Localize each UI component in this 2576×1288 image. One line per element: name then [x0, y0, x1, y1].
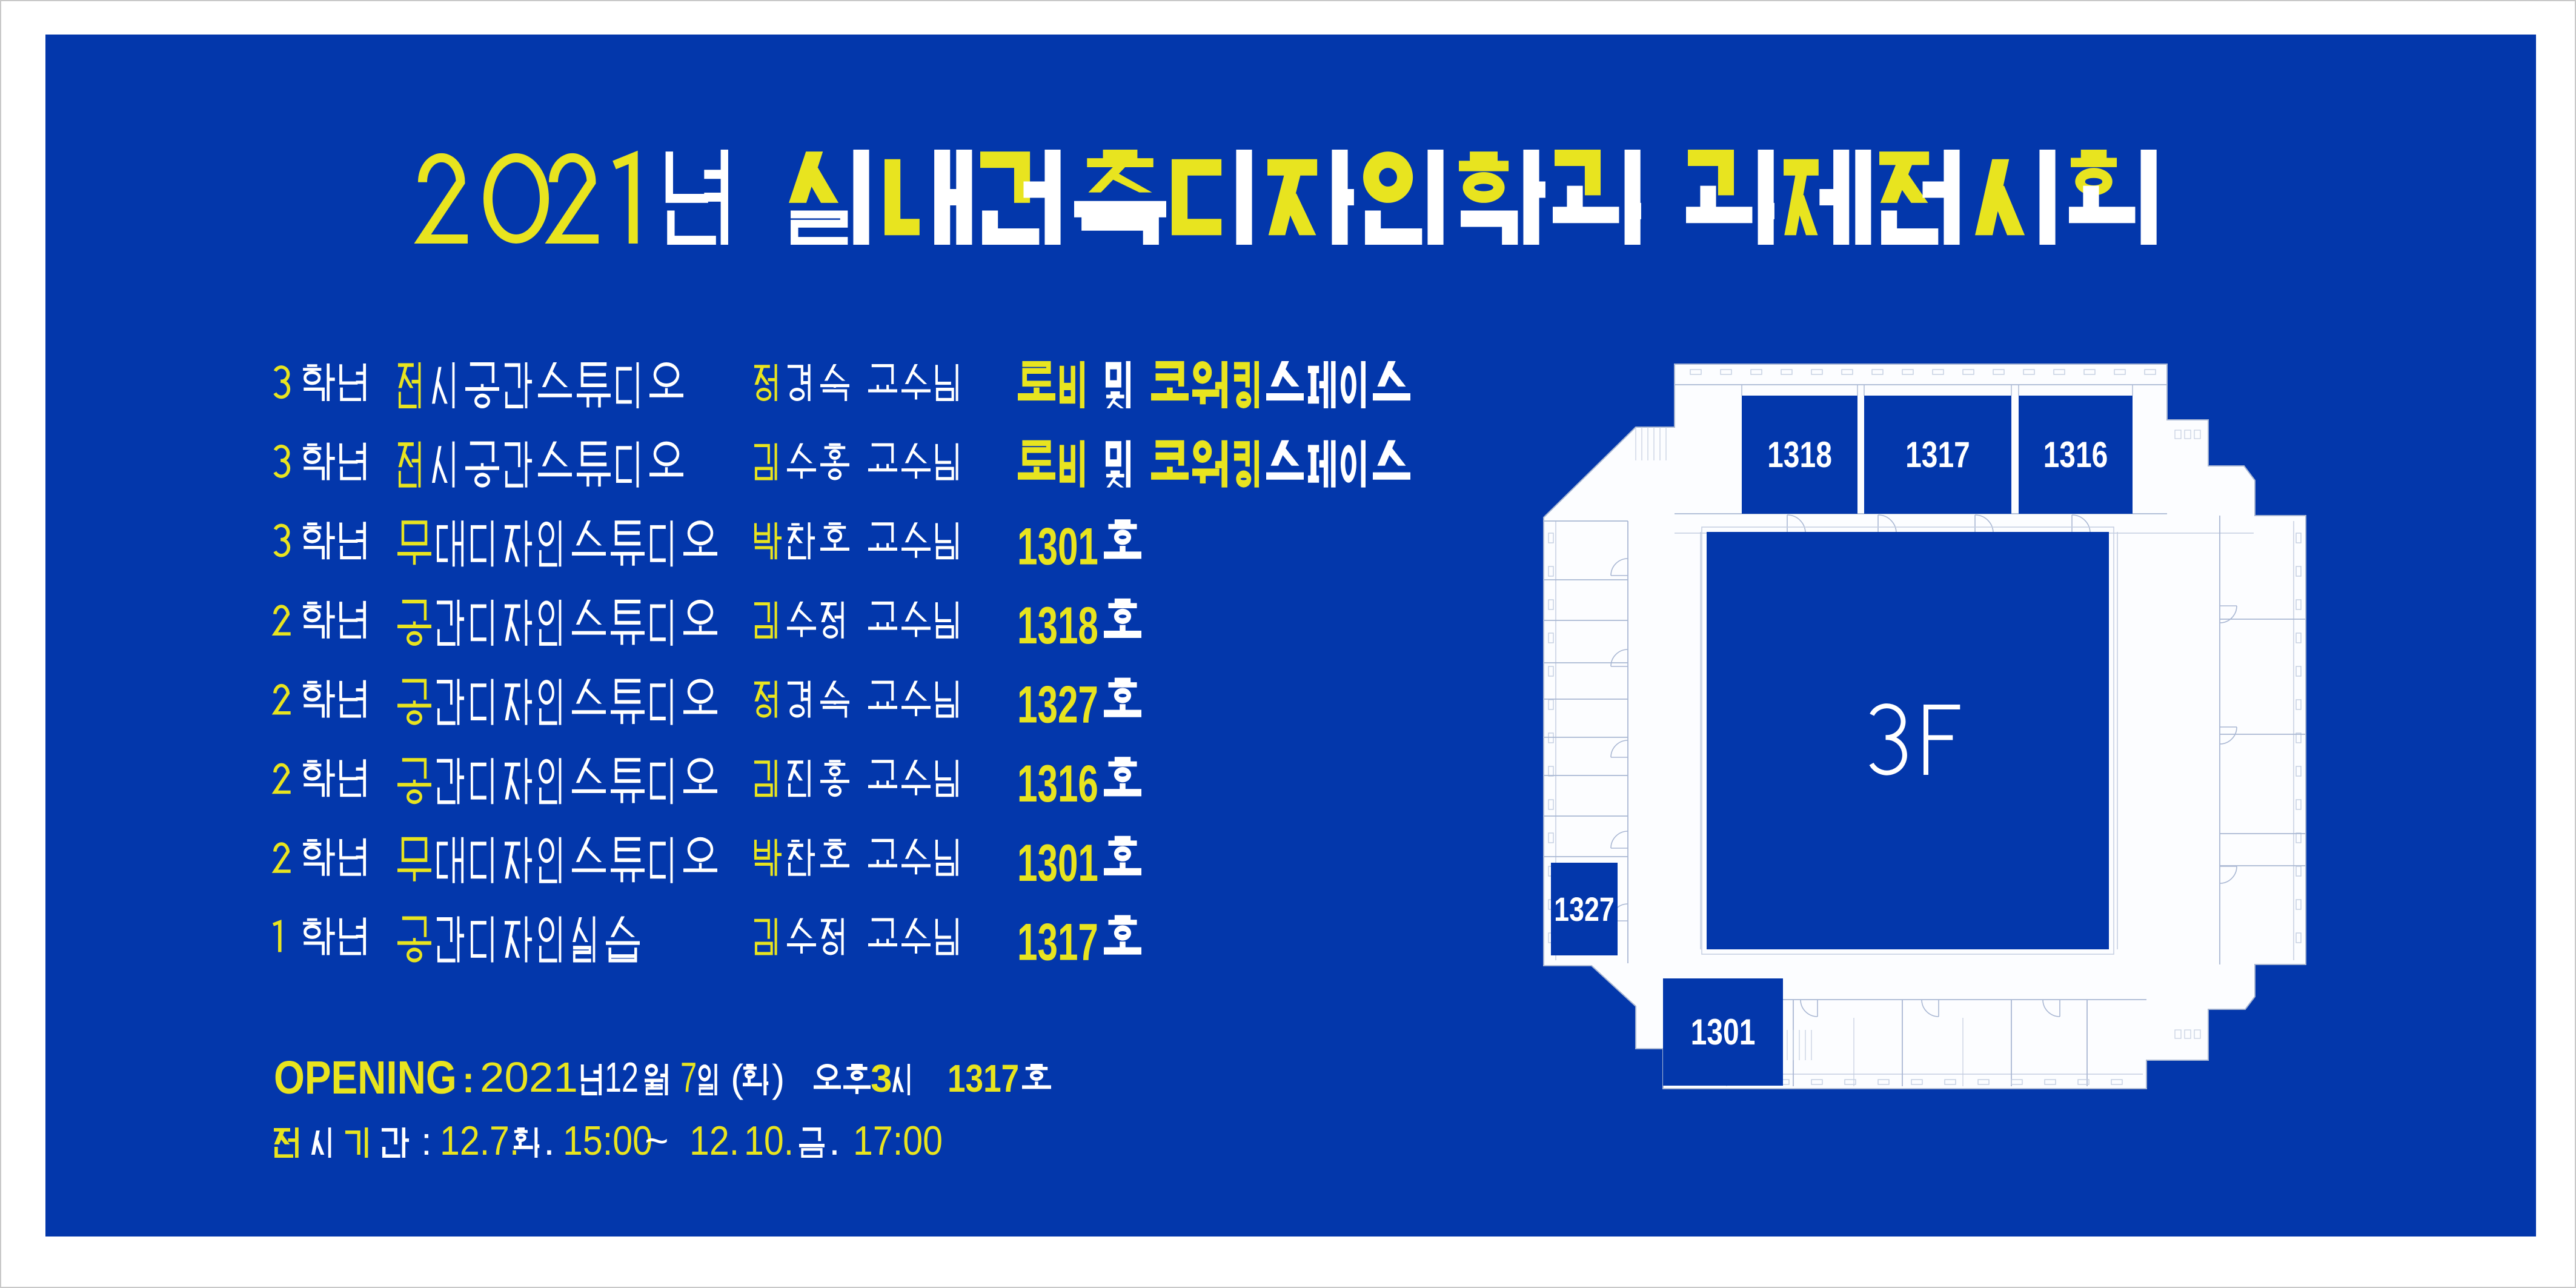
svg-text:1318: 1318 [1767, 434, 1832, 475]
svg-text:(: ( [731, 1057, 743, 1100]
svg-text:1316: 1316 [2043, 434, 2108, 475]
svg-text:2021: 2021 [480, 1054, 578, 1101]
svg-text:): ) [772, 1057, 785, 1100]
svg-text:1317: 1317 [1017, 913, 1098, 971]
svg-text:OPENING: OPENING [274, 1052, 457, 1104]
svg-text::: : [462, 1060, 474, 1100]
svg-text:1327: 1327 [1017, 676, 1098, 734]
svg-text:1316: 1316 [1017, 755, 1098, 813]
svg-text:12: 12 [605, 1054, 639, 1101]
svg-text:7.: 7. [490, 1117, 519, 1164]
svg-text:1317: 1317 [948, 1057, 1019, 1100]
svg-text:1301: 1301 [1017, 517, 1098, 576]
svg-text:.: . [829, 1118, 840, 1164]
svg-text:1301: 1301 [1017, 834, 1098, 892]
svg-text:1317: 1317 [1905, 434, 1970, 475]
svg-text:.: . [543, 1118, 555, 1164]
svg-text::: : [421, 1120, 432, 1163]
svg-text:1318: 1318 [1017, 596, 1098, 654]
svg-text:~: ~ [645, 1118, 669, 1164]
svg-text:12.: 12. [440, 1117, 490, 1164]
svg-text:12.: 12. [689, 1117, 739, 1164]
svg-text:15:00: 15:00 [563, 1117, 652, 1164]
svg-text:7: 7 [680, 1053, 697, 1101]
svg-text:17:00: 17:00 [853, 1117, 943, 1164]
svg-text:1301: 1301 [1691, 1012, 1756, 1052]
svg-text:1327: 1327 [1554, 890, 1615, 928]
svg-text:3: 3 [871, 1057, 892, 1100]
svg-text:10.: 10. [744, 1117, 794, 1164]
